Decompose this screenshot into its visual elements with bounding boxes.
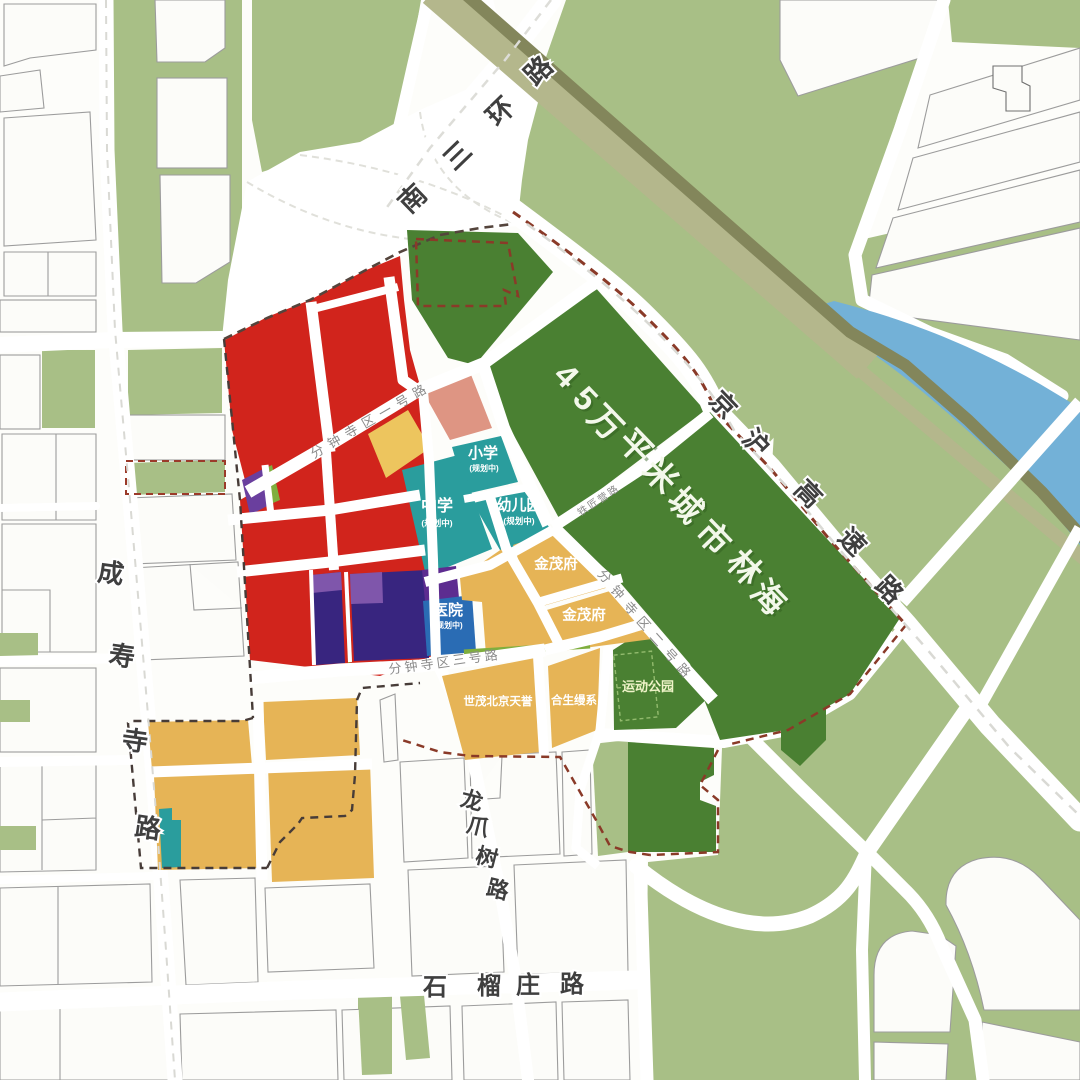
svg-text:区: 区 [436, 654, 451, 671]
svg-text:路: 路 [484, 647, 499, 664]
svg-text:(规划中): (规划中) [469, 463, 499, 473]
svg-text:号: 号 [468, 649, 483, 666]
svg-text:成: 成 [96, 556, 126, 589]
svg-text:中学: 中学 [421, 496, 453, 515]
svg-text:金茂府: 金茂府 [533, 555, 578, 573]
svg-text:世茂北京天誉: 世茂北京天誉 [464, 694, 533, 708]
svg-text:寺: 寺 [420, 656, 435, 673]
svg-text:(规划中): (规划中) [503, 516, 534, 526]
svg-text:幼儿园: 幼儿园 [496, 496, 541, 514]
svg-text:分: 分 [388, 660, 403, 677]
svg-text:(规划中): (规划中) [433, 620, 463, 630]
svg-text:金茂府: 金茂府 [561, 606, 606, 624]
svg-text:(规划中): (规划中) [421, 518, 452, 528]
svg-text:庄: 庄 [516, 971, 540, 999]
svg-text:路: 路 [133, 811, 164, 844]
svg-text:寺: 寺 [120, 724, 150, 757]
svg-text:钟: 钟 [404, 658, 419, 675]
svg-text:寿: 寿 [107, 639, 137, 672]
svg-text:小学: 小学 [468, 444, 498, 462]
svg-text:三: 三 [452, 651, 467, 668]
svg-text:榴: 榴 [477, 973, 501, 1000]
svg-text:医院: 医院 [433, 601, 463, 619]
svg-text:石: 石 [422, 974, 447, 1001]
svg-text:合生缦系: 合生缦系 [551, 693, 597, 707]
svg-text:运动公园: 运动公园 [622, 679, 674, 694]
svg-text:路: 路 [560, 970, 585, 998]
